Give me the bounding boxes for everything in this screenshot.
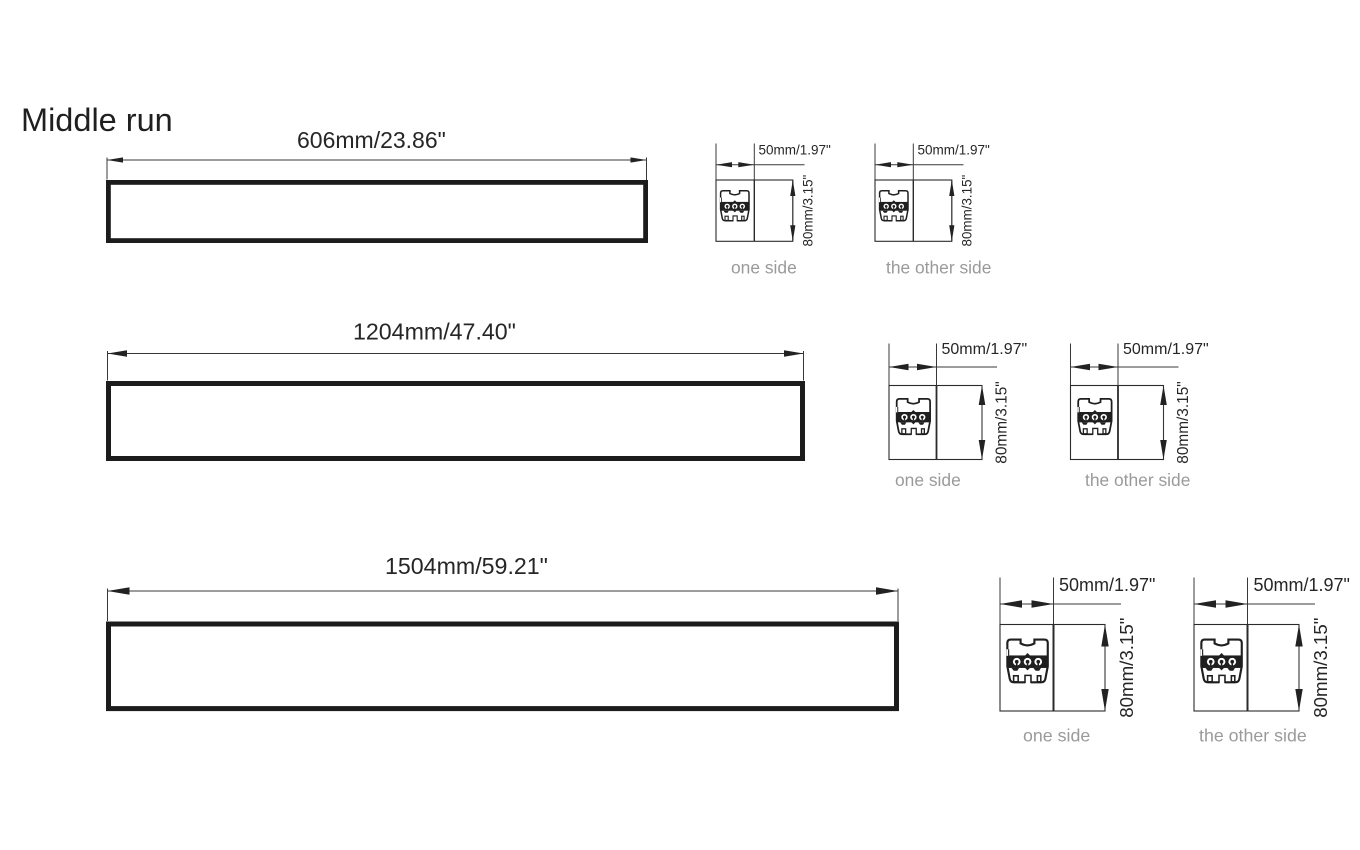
svg-text:80mm/3.15": 80mm/3.15"	[801, 174, 816, 246]
svg-text:50mm/1.97": 50mm/1.97"	[759, 143, 832, 158]
svg-text:80mm/3.15": 80mm/3.15"	[1116, 618, 1137, 718]
svg-text:606mm/23.86": 606mm/23.86"	[297, 127, 446, 153]
svg-text:50mm/1.97": 50mm/1.97"	[942, 341, 1028, 358]
svg-text:1204mm/47.40": 1204mm/47.40"	[353, 318, 516, 344]
svg-text:1504mm/59.21": 1504mm/59.21"	[385, 553, 548, 579]
svg-text:80mm/3.15": 80mm/3.15"	[960, 174, 975, 246]
svg-text:50mm/1.97": 50mm/1.97"	[1254, 575, 1350, 595]
svg-text:one side: one side	[1023, 726, 1090, 746]
svg-text:the other side: the other side	[1085, 470, 1190, 490]
svg-text:80mm/3.15": 80mm/3.15"	[993, 381, 1010, 463]
svg-text:80mm/3.15": 80mm/3.15"	[1175, 381, 1192, 463]
svg-text:Middle run: Middle run	[21, 102, 173, 138]
svg-text:the other side: the other side	[1199, 726, 1307, 746]
svg-text:the other side: the other side	[886, 258, 991, 278]
svg-text:50mm/1.97": 50mm/1.97"	[1123, 341, 1209, 358]
svg-text:50mm/1.97": 50mm/1.97"	[1059, 575, 1155, 595]
svg-text:50mm/1.97": 50mm/1.97"	[918, 143, 991, 158]
svg-text:one side: one side	[731, 258, 797, 278]
svg-text:80mm/3.15": 80mm/3.15"	[1310, 618, 1331, 718]
svg-text:one side: one side	[895, 470, 961, 490]
